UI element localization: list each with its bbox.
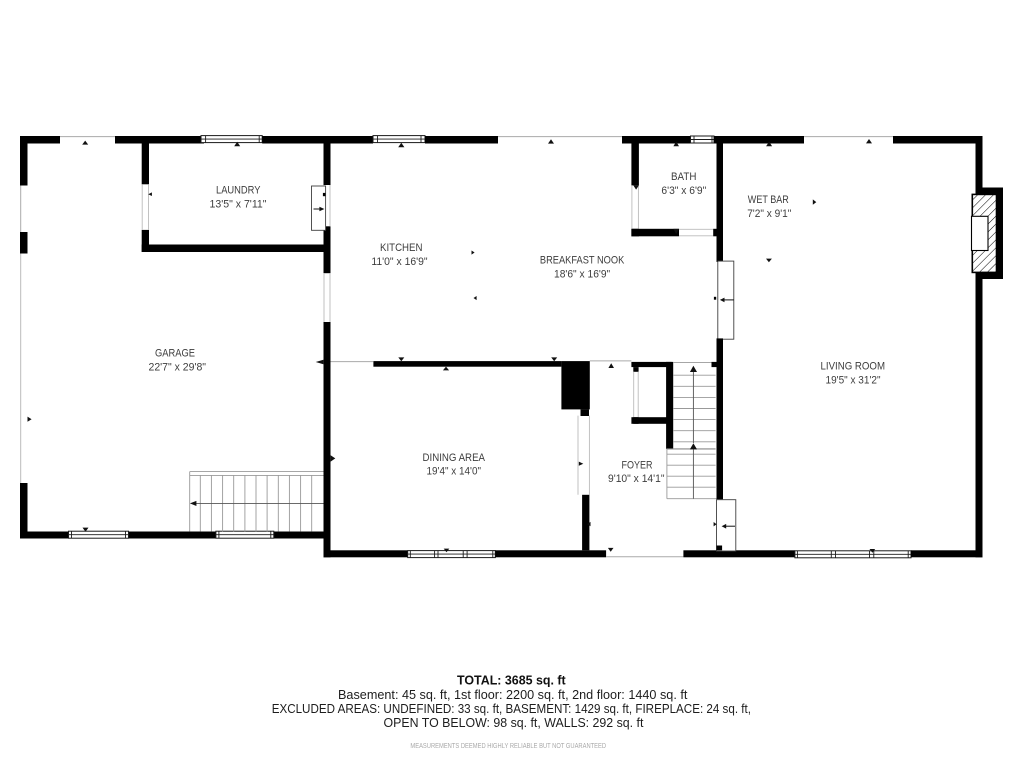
svg-text:KITCHEN: KITCHEN xyxy=(380,242,423,254)
svg-text:19'4" x 14'0": 19'4" x 14'0" xyxy=(427,466,482,478)
svg-text:6'3" x 6'9": 6'3" x 6'9" xyxy=(661,185,706,197)
svg-text:19'5" x 31'2": 19'5" x 31'2" xyxy=(826,375,881,387)
svg-text:7'2" x 9'1": 7'2" x 9'1" xyxy=(747,208,791,220)
svg-text:DINING AREA: DINING AREA xyxy=(423,452,486,464)
svg-text:OPEN TO BELOW: 98 sq. ft, WALL: OPEN TO BELOW: 98 sq. ft, WALLS: 292 sq.… xyxy=(384,715,644,730)
svg-text:Basement: 45 sq. ft, 1st floor: Basement: 45 sq. ft, 1st floor: 2200 sq.… xyxy=(338,687,688,702)
svg-text:11'0" x 16'9": 11'0" x 16'9" xyxy=(371,256,427,268)
svg-text:EXCLUDED AREAS: UNDEFINED: 33: EXCLUDED AREAS: UNDEFINED: 33 sq. ft, BA… xyxy=(272,701,751,716)
svg-text:13'5" x 7'11": 13'5" x 7'11" xyxy=(210,199,267,211)
svg-text:22'7" x 29'8": 22'7" x 29'8" xyxy=(149,361,207,373)
svg-text:9'10" x 14'1": 9'10" x 14'1" xyxy=(608,473,665,485)
svg-text:BATH: BATH xyxy=(671,171,696,183)
svg-text:MEASUREMENTS DEEMED HIGHLY REL: MEASUREMENTS DEEMED HIGHLY RELIABLE BUT … xyxy=(410,743,606,750)
svg-text:FOYER: FOYER xyxy=(622,459,653,471)
svg-text:WET BAR: WET BAR xyxy=(748,194,789,206)
svg-text:BREAKFAST NOOK: BREAKFAST NOOK xyxy=(540,255,625,267)
svg-text:18'6" x 16'9": 18'6" x 16'9" xyxy=(554,268,610,280)
svg-text:LIVING ROOM: LIVING ROOM xyxy=(821,361,886,373)
svg-text:GARAGE: GARAGE xyxy=(155,348,195,360)
svg-text:LAUNDRY: LAUNDRY xyxy=(216,185,261,197)
svg-text:TOTAL: 3685 sq. ft: TOTAL: 3685 sq. ft xyxy=(457,672,566,687)
